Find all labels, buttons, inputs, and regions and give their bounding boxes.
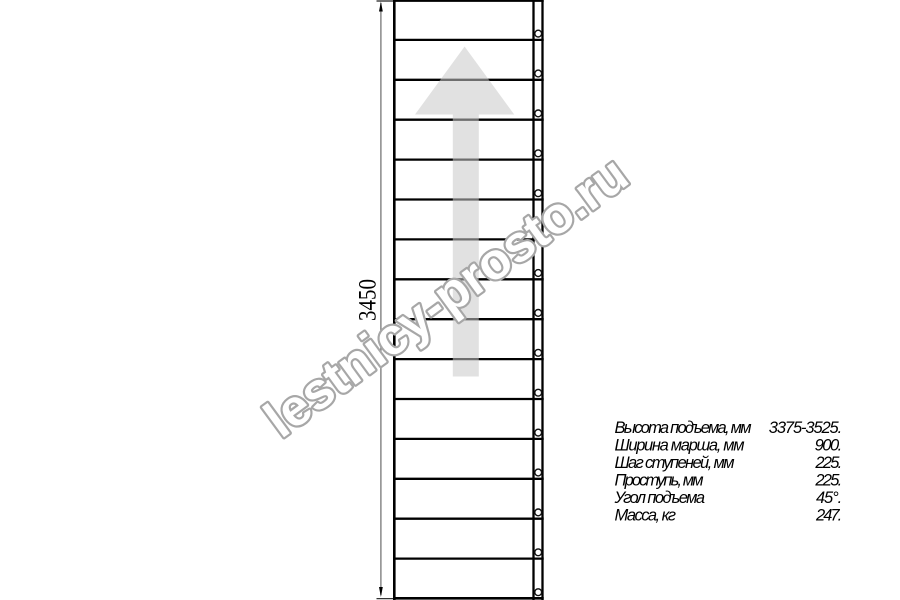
svg-text:Ширина марша, мм: Ширина марша, мм [615, 437, 745, 455]
svg-text:900.: 900. [815, 437, 843, 455]
svg-text:45°.: 45°. [816, 489, 842, 507]
svg-text:247.: 247. [815, 507, 842, 525]
svg-text:Угол подъема: Угол подъема [614, 489, 706, 507]
svg-text:225.: 225. [814, 454, 842, 472]
svg-text:Масса, кг: Масса, кг [615, 507, 677, 525]
svg-text:3375-3525.: 3375-3525. [769, 419, 842, 437]
svg-text:Проступь, мм: Проступь, мм [615, 472, 704, 490]
svg-text:Высота подъема, мм: Высота подъема, мм [615, 419, 752, 437]
svg-text:225.: 225. [814, 472, 842, 490]
svg-text:Шаг ступеней, мм: Шаг ступеней, мм [615, 454, 735, 472]
